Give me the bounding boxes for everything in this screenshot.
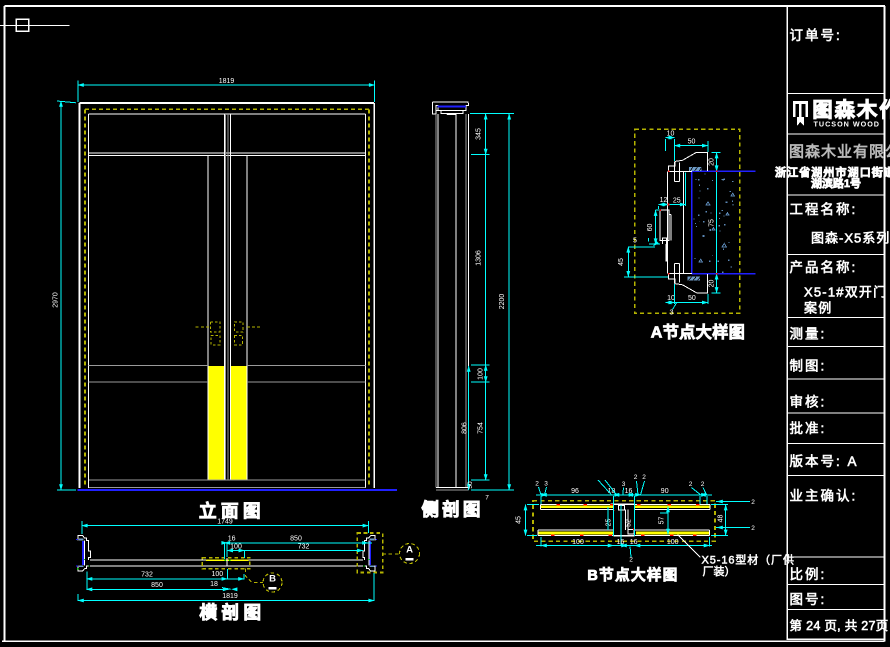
svg-text:100: 100 xyxy=(667,539,679,546)
svg-text:100: 100 xyxy=(230,543,242,550)
svg-text:732: 732 xyxy=(298,543,310,550)
svg-text:16: 16 xyxy=(617,539,625,546)
svg-text:2: 2 xyxy=(642,474,646,481)
svg-text:1819: 1819 xyxy=(222,593,238,600)
svg-text:A: A xyxy=(406,545,413,556)
svg-text:12: 12 xyxy=(660,197,668,204)
svg-text:业主确认:: 业主确认: xyxy=(790,489,858,504)
svg-text:7: 7 xyxy=(485,495,489,502)
svg-text:工程名称:: 工程名称: xyxy=(790,202,858,217)
svg-text:20: 20 xyxy=(708,280,715,288)
svg-text:850: 850 xyxy=(290,536,302,543)
svg-text:806: 806 xyxy=(461,422,468,434)
svg-text:48: 48 xyxy=(717,515,724,523)
svg-text:16: 16 xyxy=(228,536,236,543)
svg-text:57: 57 xyxy=(659,517,666,525)
svg-text:图森-X5系列: 图森-X5系列 xyxy=(811,231,890,246)
svg-text:75: 75 xyxy=(708,219,715,227)
svg-text:3: 3 xyxy=(670,310,674,317)
svg-text:制图:: 制图: xyxy=(790,359,827,374)
svg-text:比例:: 比例: xyxy=(790,567,827,582)
svg-text:50: 50 xyxy=(688,295,696,302)
svg-text:横剖图: 横剖图 xyxy=(200,603,266,623)
svg-text:100: 100 xyxy=(572,539,584,546)
svg-text:1306: 1306 xyxy=(475,250,482,266)
svg-text:732: 732 xyxy=(141,572,153,579)
svg-text:2: 2 xyxy=(751,499,755,506)
svg-text:版本号: A: 版本号: A xyxy=(790,454,859,469)
svg-text:湖滨路1号: 湖滨路1号 xyxy=(811,176,861,190)
svg-text:16: 16 xyxy=(630,539,638,546)
svg-text:图森木作: 图森木作 xyxy=(813,98,890,122)
svg-text:2: 2 xyxy=(634,474,638,481)
svg-text:1749: 1749 xyxy=(217,519,233,526)
svg-text:16: 16 xyxy=(625,488,633,495)
svg-text:45: 45 xyxy=(516,516,523,524)
svg-text:厂装）: 厂装） xyxy=(703,565,736,578)
svg-text:100: 100 xyxy=(477,368,484,380)
svg-text:批准:: 批准: xyxy=(790,421,827,436)
svg-text:B: B xyxy=(269,574,276,585)
svg-text:审核:: 审核: xyxy=(790,395,827,410)
svg-text:100: 100 xyxy=(211,571,223,578)
svg-text:图森木业有限公司: 图森木业有限公司 xyxy=(789,144,890,161)
svg-text:10: 10 xyxy=(667,130,675,137)
svg-text:90: 90 xyxy=(661,488,669,495)
svg-text:产品名称:: 产品名称: xyxy=(790,260,858,275)
svg-text:18: 18 xyxy=(210,581,218,588)
svg-text:96: 96 xyxy=(571,488,579,495)
svg-text:订单号:: 订单号: xyxy=(790,28,842,43)
svg-text:TUCSON WOOD: TUCSON WOOD xyxy=(814,120,881,129)
svg-text:X5-16型材（厂供: X5-16型材（厂供 xyxy=(702,553,795,567)
svg-text:浙江省湖州市湖口街道: 浙江省湖州市湖口街道 xyxy=(775,165,890,179)
svg-text:52: 52 xyxy=(626,519,633,527)
svg-text:2: 2 xyxy=(689,481,693,488)
svg-text:A节点大样图: A节点大样图 xyxy=(651,323,746,342)
svg-text:25: 25 xyxy=(673,197,681,204)
svg-text:X5-1#双开门: X5-1#双开门 xyxy=(804,285,887,300)
svg-text:345: 345 xyxy=(475,128,482,140)
svg-text:50: 50 xyxy=(688,138,696,145)
svg-text:侧剖图: 侧剖图 xyxy=(421,500,483,520)
svg-text:2: 2 xyxy=(629,557,633,564)
svg-text:25: 25 xyxy=(606,519,613,527)
svg-text:50: 50 xyxy=(467,481,474,489)
svg-text:20: 20 xyxy=(708,158,715,166)
svg-text:测量:: 测量: xyxy=(790,327,827,342)
svg-text:B节点大样图: B节点大样图 xyxy=(587,566,678,584)
svg-text:3: 3 xyxy=(544,481,548,488)
svg-text:1819: 1819 xyxy=(219,78,235,85)
svg-text:5: 5 xyxy=(633,238,637,245)
svg-text:2: 2 xyxy=(751,525,755,532)
svg-text:850: 850 xyxy=(151,582,163,589)
svg-text:2970: 2970 xyxy=(53,292,60,308)
svg-text:2200: 2200 xyxy=(499,294,506,310)
svg-text:2: 2 xyxy=(535,481,539,488)
svg-text:60: 60 xyxy=(647,224,654,232)
svg-text:45: 45 xyxy=(618,258,625,266)
svg-text:图号:: 图号: xyxy=(790,592,827,607)
svg-text:案例: 案例 xyxy=(804,301,832,316)
svg-text:2: 2 xyxy=(701,481,705,488)
svg-text:10: 10 xyxy=(667,295,675,302)
svg-text:第 24 页, 共 27页: 第 24 页, 共 27页 xyxy=(790,619,889,633)
svg-text:754: 754 xyxy=(477,422,484,434)
